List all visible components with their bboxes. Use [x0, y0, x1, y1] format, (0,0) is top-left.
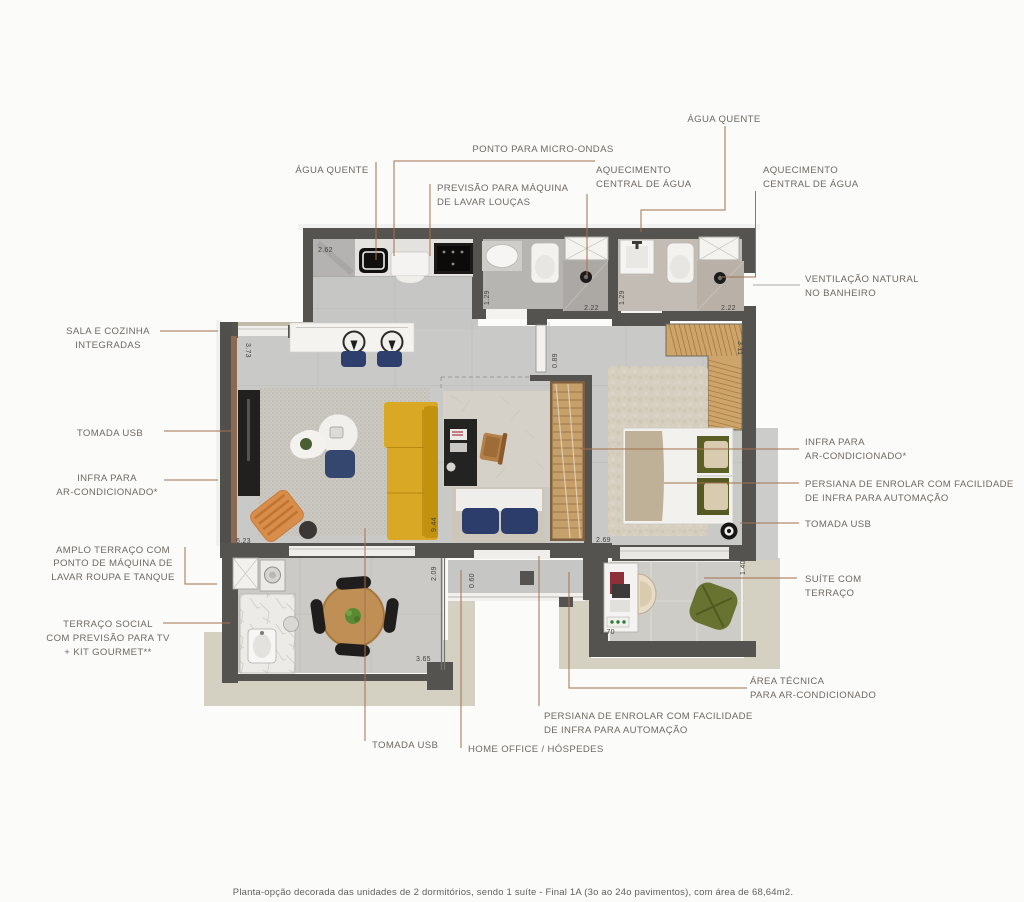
- svg-text:CENTRAL DE ÁGUA: CENTRAL DE ÁGUA: [763, 179, 859, 190]
- svg-text:3.11: 3.11: [736, 341, 743, 355]
- svg-text:2.62: 2.62: [318, 247, 333, 254]
- svg-text:TOMADA USB: TOMADA USB: [372, 740, 438, 751]
- svg-text:DE INFRA PARA AUTOMAÇÃO: DE INFRA PARA AUTOMAÇÃO: [805, 493, 949, 504]
- svg-text:AQUECIMENTO: AQUECIMENTO: [763, 165, 838, 176]
- svg-text:1.29: 1.29: [484, 290, 491, 305]
- svg-text:INTEGRADAS: INTEGRADAS: [75, 340, 141, 351]
- svg-text:VENTILAÇÃO NATURAL: VENTILAÇÃO NATURAL: [805, 274, 919, 285]
- svg-text:2.22: 2.22: [584, 305, 599, 312]
- svg-text:SUÍTE COM: SUÍTE COM: [805, 574, 861, 585]
- svg-text:1.40: 1.40: [740, 560, 747, 575]
- svg-text:PREVISÃO PARA MÁQUINA: PREVISÃO PARA MÁQUINA: [437, 183, 569, 194]
- svg-text:COM PREVISÃO PARA TV: COM PREVISÃO PARA TV: [46, 633, 170, 644]
- svg-text:CENTRAL DE ÁGUA: CENTRAL DE ÁGUA: [596, 179, 692, 190]
- svg-text:+ KIT GOURMET**: + KIT GOURMET**: [64, 647, 151, 658]
- svg-text:DE INFRA PARA AUTOMAÇÃO: DE INFRA PARA AUTOMAÇÃO: [544, 725, 688, 736]
- svg-text:NO BANHEIRO: NO BANHEIRO: [805, 288, 876, 299]
- svg-text:0.89: 0.89: [552, 353, 559, 368]
- svg-text:HOME OFFICE / HÓSPEDES: HOME OFFICE / HÓSPEDES: [468, 744, 604, 755]
- svg-text:AMPLO TERRAÇO COM: AMPLO TERRAÇO COM: [56, 545, 170, 556]
- svg-text:AR-CONDICIONADO*: AR-CONDICIONADO*: [805, 451, 907, 462]
- svg-text:3.73: 3.73: [244, 343, 251, 358]
- svg-text:PERSIANA DE ENROLAR COM FACILI: PERSIANA DE ENROLAR COM FACILIDADE: [805, 479, 1014, 490]
- svg-text:3.65: 3.65: [416, 656, 431, 663]
- svg-text:PARA AR-CONDICIONADO: PARA AR-CONDICIONADO: [750, 690, 876, 701]
- svg-text:2.69: 2.69: [596, 537, 611, 544]
- svg-text:INFRA PARA: INFRA PARA: [805, 437, 865, 448]
- svg-text:9.44: 9.44: [431, 517, 438, 532]
- svg-text:PONTO DE MÁQUINA DE: PONTO DE MÁQUINA DE: [53, 558, 172, 569]
- svg-text:1.29: 1.29: [619, 290, 626, 305]
- svg-text:2.09: 2.09: [431, 566, 438, 581]
- svg-text:AR-CONDICIONADO*: AR-CONDICIONADO*: [56, 487, 158, 498]
- svg-text:ÁREA TÉCNICA: ÁREA TÉCNICA: [750, 676, 825, 687]
- svg-text:PERSIANA DE ENROLAR COM FACILI: PERSIANA DE ENROLAR COM FACILIDADE: [544, 711, 753, 722]
- svg-text:LAVAR ROUPA E TANQUE: LAVAR ROUPA E TANQUE: [51, 572, 174, 583]
- svg-text:TOMADA USB: TOMADA USB: [77, 428, 143, 439]
- svg-text:AQUECIMENTO: AQUECIMENTO: [596, 165, 671, 176]
- svg-text:2.70: 2.70: [600, 629, 615, 636]
- svg-text:2.22: 2.22: [721, 305, 736, 312]
- svg-text:INFRA PARA: INFRA PARA: [77, 473, 137, 484]
- svg-text:TERRAÇO SOCIAL: TERRAÇO SOCIAL: [63, 619, 153, 630]
- svg-text:Planta-opção decorada das unid: Planta-opção decorada das unidades de 2 …: [233, 887, 793, 898]
- svg-text:6.23: 6.23: [236, 538, 251, 545]
- svg-text:TERRAÇO: TERRAÇO: [805, 588, 854, 599]
- svg-text:SALA E COZINHA: SALA E COZINHA: [66, 326, 150, 337]
- svg-text:TOMADA USB: TOMADA USB: [805, 519, 871, 530]
- svg-text:DE LAVAR LOUÇAS: DE LAVAR LOUÇAS: [437, 197, 530, 208]
- svg-text:ÁGUA QUENTE: ÁGUA QUENTE: [295, 165, 368, 176]
- svg-text:ÁGUA QUENTE: ÁGUA QUENTE: [687, 114, 760, 125]
- svg-text:PONTO PARA MICRO-ONDAS: PONTO PARA MICRO-ONDAS: [472, 144, 613, 155]
- svg-text:0.60: 0.60: [469, 573, 476, 588]
